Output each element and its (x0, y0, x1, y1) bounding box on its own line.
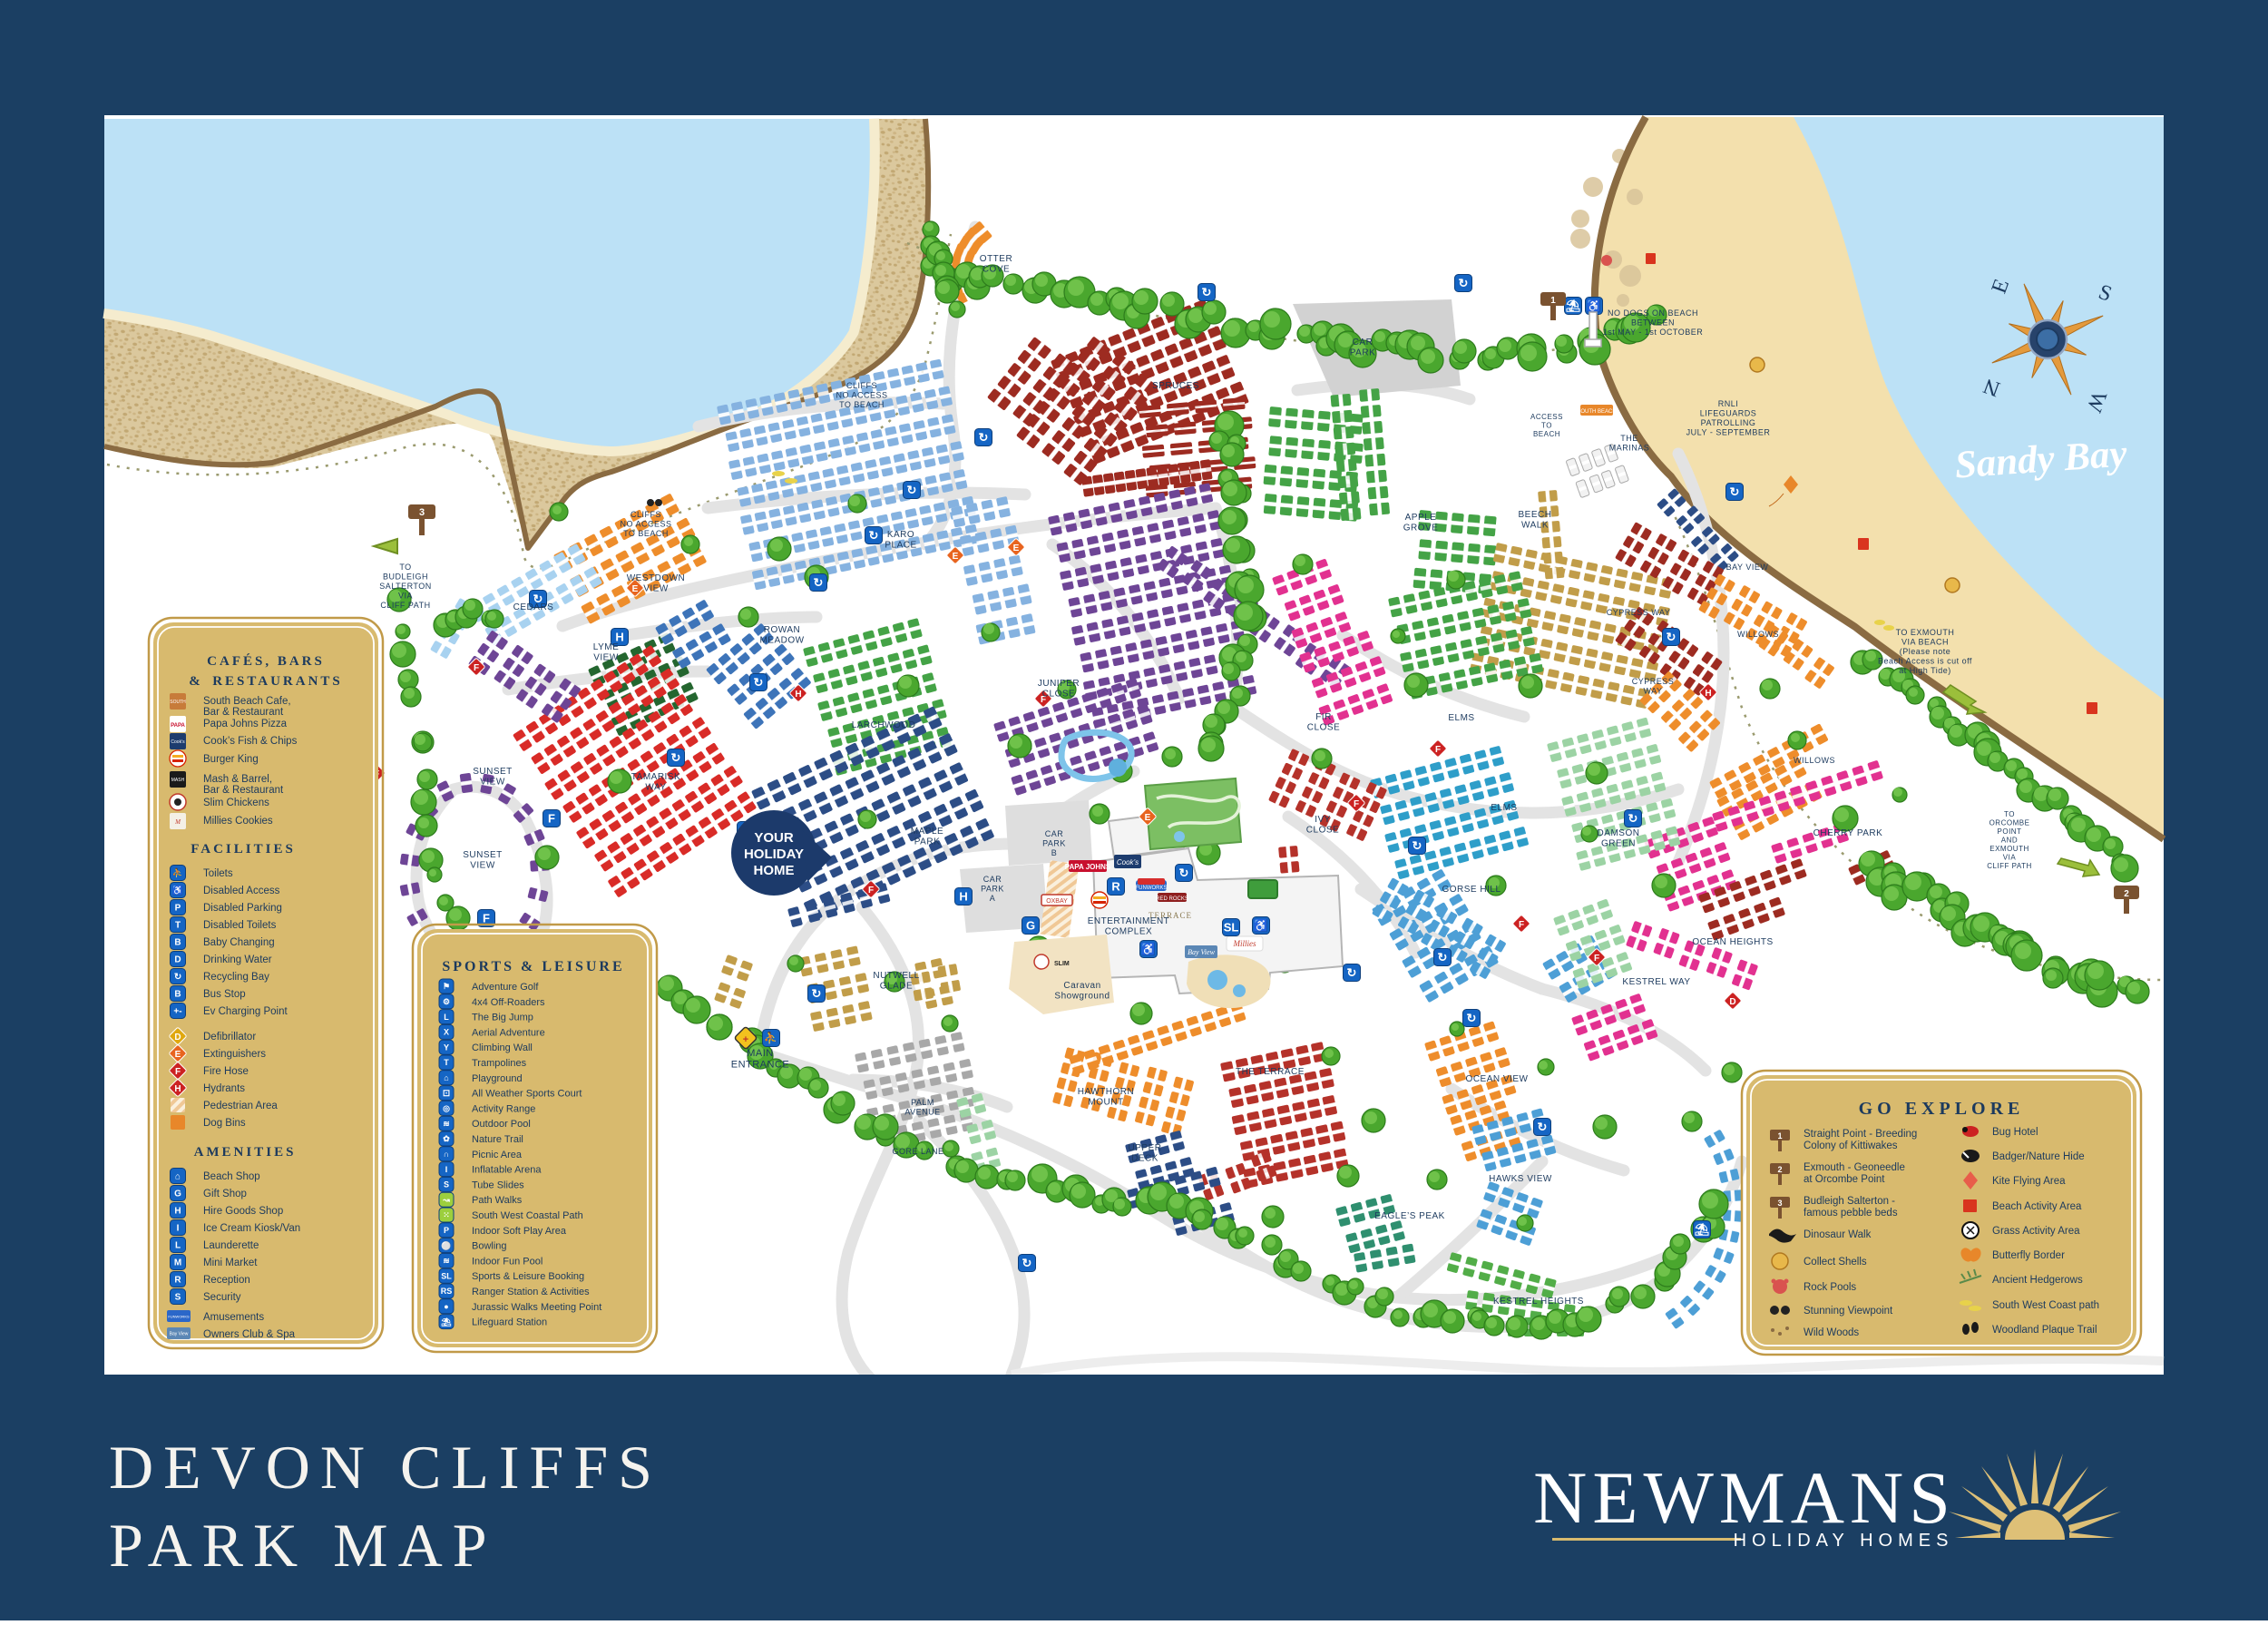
svg-text:All Weather Sports Court: All Weather Sports Court (472, 1089, 582, 1100)
svg-text:WALK: WALK (1521, 521, 1549, 531)
svg-text:NO ACCESS: NO ACCESS (836, 391, 887, 400)
svg-text:↻: ↻ (174, 973, 181, 983)
svg-text:E: E (1145, 813, 1151, 823)
svg-text:⌂: ⌂ (444, 1073, 448, 1082)
svg-text:Climbing Wall: Climbing Wall (472, 1043, 533, 1053)
svg-text:Papa Johns Pizza: Papa Johns Pizza (203, 719, 288, 729)
svg-text:NO ACCESS: NO ACCESS (620, 520, 671, 529)
svg-text:CLIFF PATH: CLIFF PATH (1987, 862, 2032, 870)
svg-text:E: E (632, 584, 639, 594)
svg-text:F: F (1519, 920, 1524, 930)
svg-text:BETWEEN: BETWEEN (1631, 318, 1675, 328)
svg-text:E: E (175, 1050, 181, 1060)
svg-text:GORSE HILL: GORSE HILL (1442, 885, 1501, 895)
svg-text:VIEW: VIEW (470, 861, 495, 871)
svg-text:KARO: KARO (887, 530, 914, 540)
svg-text:Extinguishers: Extinguishers (203, 1049, 266, 1060)
svg-text:The Big Jump: The Big Jump (472, 1013, 533, 1023)
svg-text:(Please note: (Please note (1900, 647, 1951, 656)
svg-text:RNLI: RNLI (1718, 399, 1739, 408)
svg-text:Sports & Leisure Booking: Sports & Leisure Booking (472, 1271, 584, 1282)
svg-text:↻: ↻ (1347, 966, 1357, 980)
svg-text:Mash & Barrel,: Mash & Barrel, (203, 774, 272, 785)
svg-text:Wild Woods: Wild Woods (1804, 1327, 1859, 1338)
svg-text:Path Walks: Path Walks (472, 1195, 523, 1206)
svg-text:TO BEACH: TO BEACH (839, 400, 885, 409)
svg-text:Stunning Viewpoint: Stunning Viewpoint (1804, 1306, 1893, 1317)
svg-text:NO DOGS ON BEACH: NO DOGS ON BEACH (1608, 308, 1698, 318)
svg-text:F: F (483, 912, 490, 925)
svg-text:TO: TO (2004, 810, 2015, 818)
svg-text:Bar & Restaurant: Bar & Restaurant (203, 785, 284, 796)
svg-text:GROVE: GROVE (1403, 524, 1439, 534)
svg-text:IVY: IVY (1315, 815, 1331, 825)
svg-text:3: 3 (419, 507, 425, 518)
svg-text:MARINAS: MARINAS (1609, 444, 1650, 453)
svg-text:Aerial Adventure: Aerial Adventure (472, 1027, 545, 1038)
svg-text:P: P (175, 904, 181, 914)
svg-text:↻: ↻ (1667, 631, 1677, 644)
svg-text:PAPA JOHNS: PAPA JOHNS (1065, 863, 1111, 871)
svg-text:CYPRESS WAY: CYPRESS WAY (1607, 608, 1671, 617)
svg-text:⛹: ⛹ (172, 867, 183, 879)
svg-text:Trampolines: Trampolines (472, 1058, 527, 1069)
svg-text:LIFEGUARDS: LIFEGUARDS (1700, 409, 1757, 418)
svg-text:F: F (868, 886, 874, 896)
svg-text:B: B (174, 938, 181, 948)
svg-text:PLACE: PLACE (885, 541, 916, 551)
svg-text:HAWKS VIEW: HAWKS VIEW (1489, 1174, 1552, 1184)
svg-text:GREEN: GREEN (1601, 839, 1636, 849)
svg-text:NUTWELL: NUTWELL (873, 971, 919, 981)
svg-text:SUNSET: SUNSET (463, 850, 503, 860)
svg-text:●: ● (444, 1302, 448, 1311)
svg-text:Hire Goods Shop: Hire Goods Shop (203, 1206, 283, 1217)
svg-text:LYME: LYME (593, 642, 620, 652)
svg-text:Rock Pools: Rock Pools (1804, 1282, 1856, 1293)
svg-text:CEDARS: CEDARS (513, 602, 554, 612)
svg-text:↻: ↻ (979, 431, 989, 445)
svg-text:CAFÉS, BARS: CAFÉS, BARS (207, 653, 325, 669)
svg-text:Showground: Showground (1054, 992, 1110, 1002)
svg-text:Disabled Parking: Disabled Parking (203, 903, 282, 914)
svg-text:Bus Stop: Bus Stop (203, 989, 246, 1000)
svg-text:PARK: PARK (981, 885, 1004, 894)
svg-text:VIA: VIA (398, 592, 413, 601)
svg-text:P: P (444, 1226, 449, 1235)
svg-text:PARK MAP: PARK MAP (109, 1511, 497, 1580)
svg-text:RS: RS (441, 1287, 453, 1296)
svg-text:Owners Club & Spa: Owners Club & Spa (203, 1329, 296, 1340)
svg-text:Inflatable Arena: Inflatable Arena (472, 1165, 542, 1176)
svg-text:Cook’s: Cook’s (1117, 858, 1139, 866)
svg-text:GO EXPLORE: GO EXPLORE (1859, 1099, 2025, 1119)
svg-text:Bug Hotel: Bug Hotel (1992, 1127, 2038, 1138)
svg-text:Indoor Fun Pool: Indoor Fun Pool (472, 1256, 543, 1267)
svg-text:Kite Flying Area: Kite Flying Area (1992, 1176, 2066, 1187)
svg-text:♿: ♿ (1587, 299, 1601, 313)
svg-text:FUNWORKS: FUNWORKS (1136, 886, 1168, 891)
svg-text:∩: ∩ (444, 1150, 450, 1159)
svg-text:M: M (174, 818, 181, 826)
svg-text:SPORTS & LEISURE: SPORTS & LEISURE (442, 959, 624, 974)
svg-text:⌂: ⌂ (175, 1172, 181, 1182)
svg-text:F: F (1435, 745, 1441, 755)
svg-text:Dog Bins: Dog Bins (203, 1118, 246, 1129)
svg-text:SALTERTON: SALTERTON (379, 582, 432, 591)
svg-text:BAY VIEW: BAY VIEW (1726, 563, 1769, 572)
svg-text:THE TERRACE: THE TERRACE (1236, 1067, 1305, 1077)
svg-text:at Orcombe Point: at Orcombe Point (1804, 1174, 1885, 1185)
svg-text:↻: ↻ (1467, 1012, 1477, 1025)
svg-text:I: I (445, 1165, 448, 1174)
svg-text:PAPA: PAPA (171, 723, 185, 729)
svg-text:VIA BEACH: VIA BEACH (1901, 638, 1949, 647)
svg-text:SOUTH: SOUTH (170, 700, 186, 705)
svg-text:Baby Changing: Baby Changing (203, 937, 275, 948)
svg-text:B: B (174, 990, 181, 1000)
svg-text:MEADOW: MEADOW (759, 636, 804, 646)
svg-text:↻: ↻ (1459, 277, 1469, 290)
svg-text:Security: Security (203, 1292, 241, 1303)
svg-text:OCEAN HEIGHTS: OCEAN HEIGHTS (1692, 937, 1773, 947)
svg-text:R: R (1111, 880, 1120, 894)
svg-text:Slim Chickens: Slim Chickens (203, 798, 269, 808)
svg-text:Colony of Kittiwakes: Colony of Kittiwakes (1804, 1140, 1898, 1151)
svg-text:OXBAY: OXBAY (1046, 898, 1068, 905)
svg-text:≋: ≋ (443, 1257, 450, 1266)
svg-text:⛱: ⛱ (441, 1317, 451, 1326)
svg-text:Drinking Water: Drinking Water (203, 954, 272, 965)
svg-text:Playground: Playground (472, 1073, 523, 1084)
svg-text:NEWMANS: NEWMANS (1533, 1456, 1956, 1539)
svg-text:Exmouth - Geoneedle: Exmouth - Geoneedle (1804, 1162, 1905, 1173)
svg-text:FIR: FIR (1315, 712, 1332, 722)
svg-text:↻: ↻ (1202, 286, 1212, 299)
svg-text:KESTREL WAY: KESTREL WAY (1622, 977, 1690, 987)
svg-text:2: 2 (1777, 1165, 1782, 1174)
svg-text:VIEW: VIEW (593, 653, 619, 663)
svg-text:Gift Shop: Gift Shop (203, 1189, 247, 1199)
svg-text:Collect Shells: Collect Shells (1804, 1257, 1867, 1268)
svg-text:Ice Cream Kiosk/Van: Ice Cream Kiosk/Van (203, 1223, 300, 1234)
svg-text:GORE LANE: GORE LANE (892, 1147, 943, 1156)
svg-text:↻: ↻ (671, 751, 681, 765)
svg-text:Lifeguard Station: Lifeguard Station (472, 1317, 547, 1328)
svg-text:X: X (444, 1028, 449, 1037)
svg-text:MAPLE: MAPLE (911, 827, 943, 837)
svg-text:+-: +- (173, 1007, 181, 1017)
svg-text:ROWAN: ROWAN (764, 625, 800, 635)
svg-text:PALM: PALM (911, 1098, 934, 1107)
svg-text:HOLIDAY: HOLIDAY (744, 847, 804, 862)
svg-text:↻: ↻ (1179, 866, 1189, 880)
svg-text:E: E (953, 552, 959, 562)
svg-text:SPRUCES: SPRUCES (1152, 381, 1199, 391)
svg-text:Ranger Station & Activities: Ranger Station & Activities (472, 1287, 590, 1297)
svg-text:Fire Hose: Fire Hose (203, 1066, 249, 1077)
svg-text:Adventure Golf: Adventure Golf (472, 982, 539, 993)
svg-text:TO: TO (1541, 422, 1552, 430)
svg-text:↝: ↝ (442, 1195, 450, 1204)
svg-text:DEVON CLIFFS: DEVON CLIFFS (109, 1433, 662, 1502)
svg-text:UPPER: UPPER (1129, 1143, 1162, 1153)
svg-text:F: F (548, 812, 555, 826)
svg-text:D: D (174, 955, 181, 965)
svg-text:⛹: ⛹ (764, 1031, 778, 1045)
svg-text:Bar & Restaurant: Bar & Restaurant (203, 707, 284, 718)
svg-text:G: G (174, 1189, 181, 1199)
svg-text:Bowling: Bowling (472, 1241, 507, 1252)
svg-text:Woodland Plaque Trail: Woodland Plaque Trail (1992, 1325, 2097, 1336)
svg-text:THE: THE (1620, 434, 1638, 443)
svg-text:D: D (174, 1033, 181, 1043)
svg-text:VIA: VIA (2003, 854, 2017, 862)
svg-text:TAMARISK: TAMARISK (631, 772, 680, 782)
svg-text:Grass Activity Area: Grass Activity Area (1992, 1226, 2080, 1237)
svg-text:⁙: ⁙ (443, 1210, 450, 1219)
svg-text:VIEW: VIEW (643, 584, 669, 594)
svg-text:H: H (795, 690, 801, 700)
svg-text:SUNSET: SUNSET (473, 767, 513, 777)
svg-text:T: T (175, 921, 181, 931)
svg-text:↻: ↻ (1022, 1257, 1032, 1270)
svg-text:♿: ♿ (1141, 943, 1156, 956)
svg-text:CAR: CAR (1045, 829, 1064, 838)
svg-text:↻: ↻ (814, 576, 824, 590)
svg-text:ELMS: ELMS (1491, 803, 1517, 813)
svg-text:↻: ↻ (869, 529, 879, 543)
svg-text:H: H (1705, 689, 1711, 699)
svg-text:MOUNT: MOUNT (1088, 1098, 1123, 1108)
svg-text:Pedestrian Area: Pedestrian Area (203, 1101, 278, 1111)
svg-text:EAGLE’S PEAK: EAGLE’S PEAK (1374, 1211, 1445, 1221)
svg-text:CLIFF PATH: CLIFF PATH (380, 601, 430, 610)
svg-text:HAWTHORN: HAWTHORN (1078, 1087, 1135, 1097)
svg-text:LARCHWOOD: LARCHWOOD (852, 720, 916, 730)
svg-text:POINT: POINT (1998, 827, 2022, 836)
svg-text:WILLOWS: WILLOWS (1737, 630, 1779, 639)
svg-text:⛱: ⛱ (1566, 299, 1581, 313)
svg-text:Launderette: Launderette (203, 1240, 259, 1251)
svg-text:F: F (175, 1067, 181, 1077)
svg-text:B: B (1051, 848, 1058, 857)
svg-text:Hydrants: Hydrants (203, 1083, 245, 1094)
svg-text:♿: ♿ (1254, 919, 1268, 933)
svg-text:EXMOUTH: EXMOUTH (1989, 845, 2029, 853)
svg-text:↻: ↻ (1438, 951, 1448, 964)
svg-text:COMPLEX: COMPLEX (1105, 927, 1152, 937)
svg-text:AND: AND (2001, 837, 2018, 845)
svg-text:≋: ≋ (443, 1119, 450, 1128)
svg-text:HOLIDAY HOMES: HOLIDAY HOMES (1734, 1531, 1954, 1551)
svg-text:ACCESS: ACCESS (1530, 413, 1563, 421)
svg-text:HOME: HOME (754, 863, 795, 878)
svg-text:CAR: CAR (983, 875, 1002, 884)
svg-text:Y: Y (444, 1043, 449, 1052)
svg-text:ENTERTAINMENT: ENTERTAINMENT (1088, 916, 1170, 926)
svg-text:WILLOWS: WILLOWS (1794, 756, 1835, 765)
svg-text:Cook’s: Cook’s (171, 739, 185, 745)
svg-text:Disabled Access: Disabled Access (203, 886, 280, 896)
svg-text:AVENUE: AVENUE (904, 1108, 940, 1117)
svg-text:Reception: Reception (203, 1275, 250, 1286)
svg-text:Straight Point - Breeding: Straight Point - Breeding (1804, 1129, 1917, 1140)
svg-text:G: G (1026, 919, 1035, 933)
svg-text:WAY: WAY (645, 783, 666, 793)
svg-text:A: A (990, 894, 996, 903)
svg-text:Recycling Bay: Recycling Bay (203, 972, 269, 983)
svg-text:DECK: DECK (1131, 1154, 1158, 1164)
svg-text:⛱: ⛱ (1695, 1223, 1710, 1237)
svg-text:L: L (444, 1013, 449, 1022)
svg-text:2: 2 (2124, 889, 2129, 899)
svg-text:WESTDOWN: WESTDOWN (627, 573, 686, 583)
svg-text:Bay View: Bay View (170, 1332, 189, 1337)
svg-text:SL: SL (1224, 921, 1239, 935)
svg-text:CYPRESS: CYPRESS (1632, 677, 1675, 686)
svg-text:CLOSE: CLOSE (1306, 826, 1339, 836)
svg-text:& RESTAURANTS: & RESTAURANTS (189, 674, 343, 689)
svg-text:✿: ✿ (443, 1134, 450, 1143)
svg-text:JUNIPER: JUNIPER (1038, 679, 1080, 689)
svg-text:F: F (1594, 954, 1599, 964)
svg-text:COVE: COVE (982, 265, 1010, 275)
svg-text:Burger King: Burger King (203, 754, 259, 765)
svg-text:◎: ◎ (443, 1104, 450, 1113)
svg-text:3: 3 (1777, 1199, 1782, 1208)
svg-text:I: I (177, 1224, 180, 1234)
svg-text:VIEW: VIEW (480, 778, 505, 788)
svg-text:L: L (175, 1241, 181, 1251)
svg-text:TO EXMOUTH: TO EXMOUTH (1896, 628, 1955, 637)
svg-text:1st MAY - 1st OCTOBER: 1st MAY - 1st OCTOBER (1603, 328, 1704, 337)
svg-text:CHERRY PARK: CHERRY PARK (1813, 828, 1883, 838)
svg-text:Disabled Toilets: Disabled Toilets (203, 920, 277, 931)
svg-text:4x4 Off-Roaders: 4x4 Off-Roaders (472, 997, 545, 1008)
svg-text:M: M (174, 1258, 181, 1268)
svg-text:MAIN: MAIN (747, 1048, 774, 1059)
svg-text:Ancient Hedgerows: Ancient Hedgerows (1992, 1275, 2083, 1286)
svg-text:DAMSON: DAMSON (1598, 828, 1640, 838)
svg-text:KESTREL HEIGHTS: KESTREL HEIGHTS (1493, 1297, 1584, 1307)
svg-text:YOUR: YOUR (754, 830, 794, 846)
svg-text:Defibrillator: Defibrillator (203, 1032, 256, 1043)
svg-text:RED ROCKS: RED ROCKS (1156, 896, 1188, 902)
svg-text:⚙: ⚙ (443, 997, 450, 1006)
svg-text:BEECH: BEECH (1519, 510, 1552, 520)
svg-text:1: 1 (1550, 296, 1556, 306)
svg-text:⚀: ⚀ (443, 1089, 450, 1098)
svg-text:Budleigh Salterton -: Budleigh Salterton - (1804, 1196, 1895, 1207)
svg-text:Mini Market: Mini Market (203, 1258, 258, 1268)
svg-text:APPLE: APPLE (1405, 513, 1437, 523)
svg-text:+: + (743, 1034, 748, 1045)
svg-text:H: H (174, 1084, 181, 1094)
svg-text:Caravan: Caravan (1063, 981, 1100, 991)
svg-text:F: F (1354, 799, 1359, 809)
svg-text:BEACH: BEACH (1533, 430, 1560, 438)
svg-text:⚑: ⚑ (443, 982, 450, 991)
svg-text:↻: ↻ (1730, 485, 1740, 499)
svg-text:JULY - SEPTEMBER: JULY - SEPTEMBER (1686, 428, 1771, 437)
svg-text:↻: ↻ (754, 676, 764, 690)
svg-text:Beach Shop: Beach Shop (203, 1171, 260, 1182)
svg-text:♿: ♿ (172, 885, 183, 896)
svg-text:Indoor Soft Play Area: Indoor Soft Play Area (472, 1226, 567, 1237)
svg-text:SOUTH BEACH: SOUTH BEACH (1577, 409, 1616, 415)
svg-text:MASH: MASH (171, 778, 185, 783)
svg-text:T: T (444, 1058, 449, 1067)
svg-text:H: H (174, 1207, 181, 1217)
svg-text:↻: ↻ (1628, 812, 1638, 826)
svg-text:↻: ↻ (1413, 839, 1422, 853)
svg-text:Beach Activity Area: Beach Activity Area (1992, 1201, 2082, 1212)
svg-text:SL: SL (441, 1271, 452, 1280)
svg-text:TO BEACH: TO BEACH (623, 529, 669, 538)
svg-text:FACILITIES: FACILITIES (191, 842, 296, 857)
svg-text:Millies: Millies (1233, 939, 1256, 948)
svg-text:OCEAN VIEW: OCEAN VIEW (1466, 1074, 1529, 1084)
svg-text:Millies Cookies: Millies Cookies (203, 816, 273, 827)
svg-text:South West Coastal Path: South West Coastal Path (472, 1210, 583, 1221)
svg-text:R: R (174, 1276, 181, 1286)
svg-text:GLADE: GLADE (880, 982, 913, 992)
svg-text:CLOSE: CLOSE (1042, 690, 1075, 700)
svg-text:AMENITIES: AMENITIES (194, 1145, 297, 1160)
svg-text:Bay View: Bay View (1188, 948, 1216, 956)
svg-text:ELMS: ELMS (1448, 713, 1474, 723)
svg-text:Cook’s Fish & Chips: Cook’s Fish & Chips (203, 736, 298, 747)
svg-text:SLIM: SLIM (1054, 961, 1070, 967)
svg-text:CLIFFS: CLIFFS (846, 381, 877, 390)
svg-text:Nature Trail: Nature Trail (472, 1134, 523, 1145)
svg-text:Dinosaur Walk: Dinosaur Walk (1804, 1229, 1872, 1240)
svg-text:OTTER: OTTER (980, 254, 1012, 264)
svg-text:S: S (444, 1180, 449, 1189)
svg-text:at High Tide): at High Tide) (1899, 666, 1951, 675)
svg-text:Badger/Nature Hide: Badger/Nature Hide (1992, 1151, 2085, 1162)
svg-text:CAR: CAR (1353, 338, 1374, 348)
svg-text:S: S (175, 1293, 181, 1303)
svg-text:F: F (474, 663, 479, 673)
svg-text:Ev Charging Point: Ev Charging Point (203, 1006, 288, 1017)
svg-text:Butterfly Border: Butterfly Border (1992, 1250, 2065, 1261)
svg-text:↻: ↻ (907, 484, 917, 497)
svg-text:South West Coast path: South West Coast path (1992, 1300, 2099, 1311)
svg-text:PATROLLING: PATROLLING (1701, 418, 1756, 427)
svg-text:↻: ↻ (1538, 1121, 1548, 1134)
svg-text:Activity Range: Activity Range (472, 1103, 535, 1114)
svg-text:1: 1 (1777, 1131, 1782, 1140)
svg-text:Toilets: Toilets (203, 868, 233, 879)
svg-text:Beach Access is cut off: Beach Access is cut off (1878, 657, 1972, 666)
svg-text:Outdoor Pool: Outdoor Pool (472, 1119, 531, 1130)
svg-text:FUNWORKS: FUNWORKS (168, 1315, 190, 1319)
svg-text:Picnic Area: Picnic Area (472, 1150, 523, 1160)
svg-text:PARK: PARK (914, 837, 941, 847)
svg-text:PARK: PARK (1350, 348, 1376, 358)
svg-text:famous pebble beds: famous pebble beds (1804, 1208, 1898, 1219)
svg-text:WAY: WAY (1644, 687, 1663, 696)
svg-text:⚪: ⚪ (441, 1240, 451, 1250)
svg-text:ORCOMBE: ORCOMBE (1989, 819, 2030, 827)
svg-text:D: D (1729, 997, 1735, 1007)
svg-text:CLIFFS: CLIFFS (631, 510, 661, 519)
svg-text:TO: TO (399, 563, 411, 572)
svg-text:PARK: PARK (1042, 839, 1066, 848)
svg-text:South Beach Cafe,: South Beach Cafe, (203, 696, 291, 707)
